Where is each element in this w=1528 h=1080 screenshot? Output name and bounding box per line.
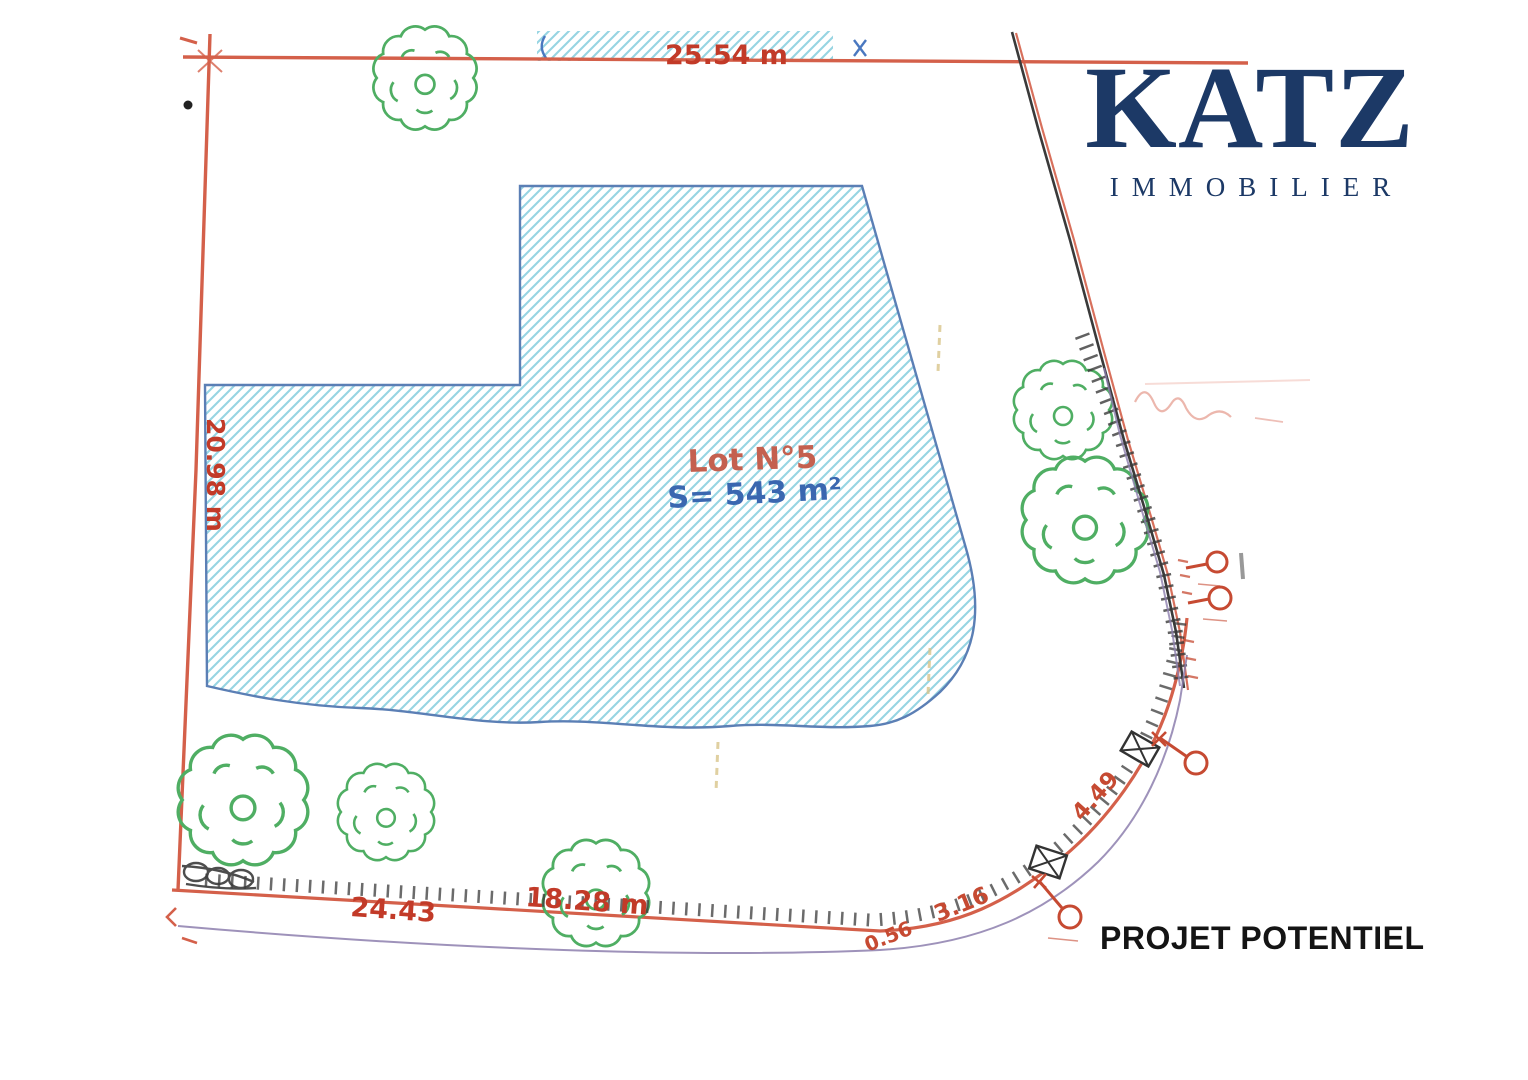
dim-bottom-1: 24.43 [350,892,437,929]
lot-area-region [205,186,975,728]
dim-bottom-2: 18.28 m [525,882,650,922]
katz-logo: KATZ IMMOBILIER [1085,52,1415,203]
tree-icon [178,735,308,865]
utility-marker-icon [1186,552,1227,586]
katz-logo-subtext: IMMOBILIER [1085,172,1415,203]
dim-curve-1: 4.49 [1067,766,1124,826]
tree-icon [1014,361,1112,459]
dim-curve-2: 3.16 [931,882,993,927]
dim-top: 25.54 m [665,40,788,71]
dim-left: 20.98 m [201,418,230,532]
utility-marker-icon [1188,587,1231,621]
tree-icon [338,764,434,860]
tree-icon [373,26,476,129]
survey-point-dot [184,101,193,110]
tagline-projet-potentiel: PROJET POTENTIEL [1100,920,1520,957]
projet-potentiel-slide: 25.54 m 20.98 m 24.43 18.28 m 4.49 3.16 … [0,0,1528,1080]
katz-logo-wordmark: KATZ [1085,52,1415,164]
tree-icon [1022,457,1148,583]
